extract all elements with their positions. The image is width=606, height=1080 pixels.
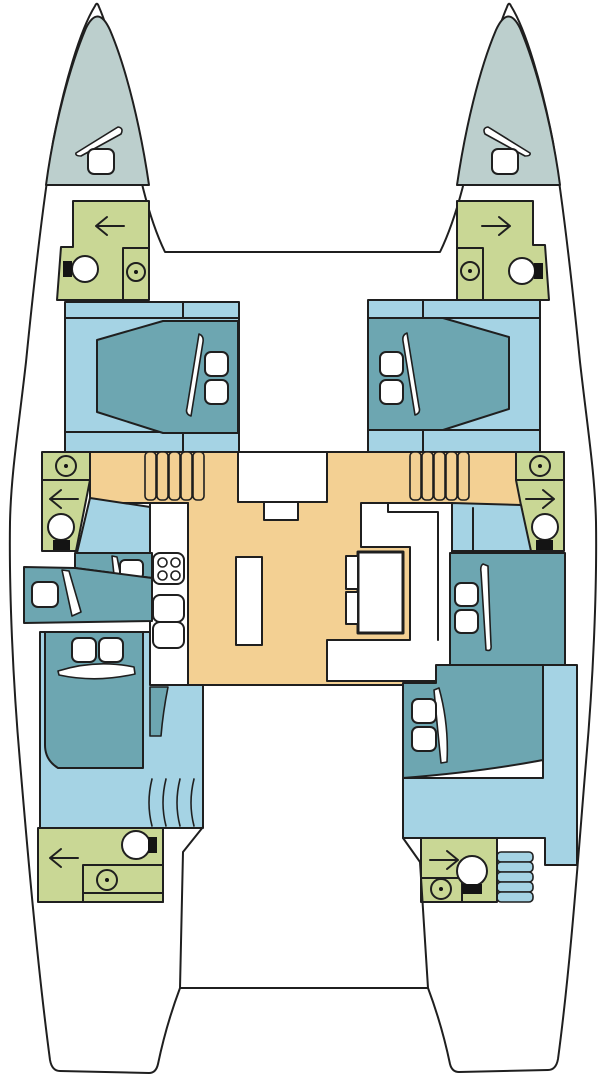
deck-hatch-icon [492, 149, 518, 174]
island-icon [236, 557, 262, 645]
toilet-icon [122, 831, 150, 859]
stove-icon [153, 553, 184, 584]
companionway-steps-icon [145, 452, 204, 500]
mid-cabin-starboard [450, 553, 565, 665]
toilet-tank [534, 263, 543, 279]
toilet-tank [148, 837, 157, 853]
companionway-steps-icon [410, 452, 469, 500]
pillow-icon [380, 352, 403, 376]
sink-icon [97, 870, 117, 890]
toilet-tank [63, 261, 72, 277]
passage-starboard [452, 503, 531, 551]
toilet-icon [509, 258, 535, 284]
aft-head-port [38, 828, 163, 902]
pillow-icon [205, 380, 228, 404]
passage-port [76, 498, 150, 557]
sink-icon [127, 263, 145, 281]
toilet-tank [53, 540, 70, 550]
pillow-icon [380, 380, 403, 404]
pillow-icon [455, 583, 478, 606]
toilet-icon [532, 514, 558, 540]
sink-icon [461, 262, 479, 280]
floor-plan-svg [0, 0, 606, 1080]
pillow-icon [32, 582, 58, 607]
pillow-icon [205, 352, 228, 376]
toilet-icon [457, 856, 487, 886]
stairs-bars-icon [497, 852, 533, 902]
dinette-seat [346, 556, 358, 589]
foredeck-starboard [457, 16, 560, 185]
toilet-icon [48, 514, 74, 540]
toilet-tank [462, 884, 482, 894]
nav-locker-step [264, 502, 298, 520]
foredeck-port [46, 16, 149, 185]
sink-icon [56, 456, 76, 476]
sink-icon [431, 879, 451, 899]
toilet-tank [536, 540, 553, 550]
dinette-table-icon [358, 552, 403, 633]
catamaran-floor-plan [0, 0, 606, 1080]
pillow-icon [412, 699, 436, 723]
toilet-icon [72, 256, 98, 282]
galley-sinks-icon [153, 595, 184, 648]
aft-head-starboard [421, 838, 497, 902]
pillow-icon [99, 638, 123, 662]
pillow-icon [455, 610, 478, 633]
nav-locker [238, 452, 327, 502]
sink-icon [530, 456, 550, 476]
forward-cabin-starboard [368, 300, 540, 452]
deck-hatch-icon [88, 149, 114, 174]
pillow-icon [72, 638, 96, 662]
forward-cabin-port [65, 302, 239, 452]
dinette-seat [346, 592, 358, 624]
pillow-icon [412, 727, 436, 751]
